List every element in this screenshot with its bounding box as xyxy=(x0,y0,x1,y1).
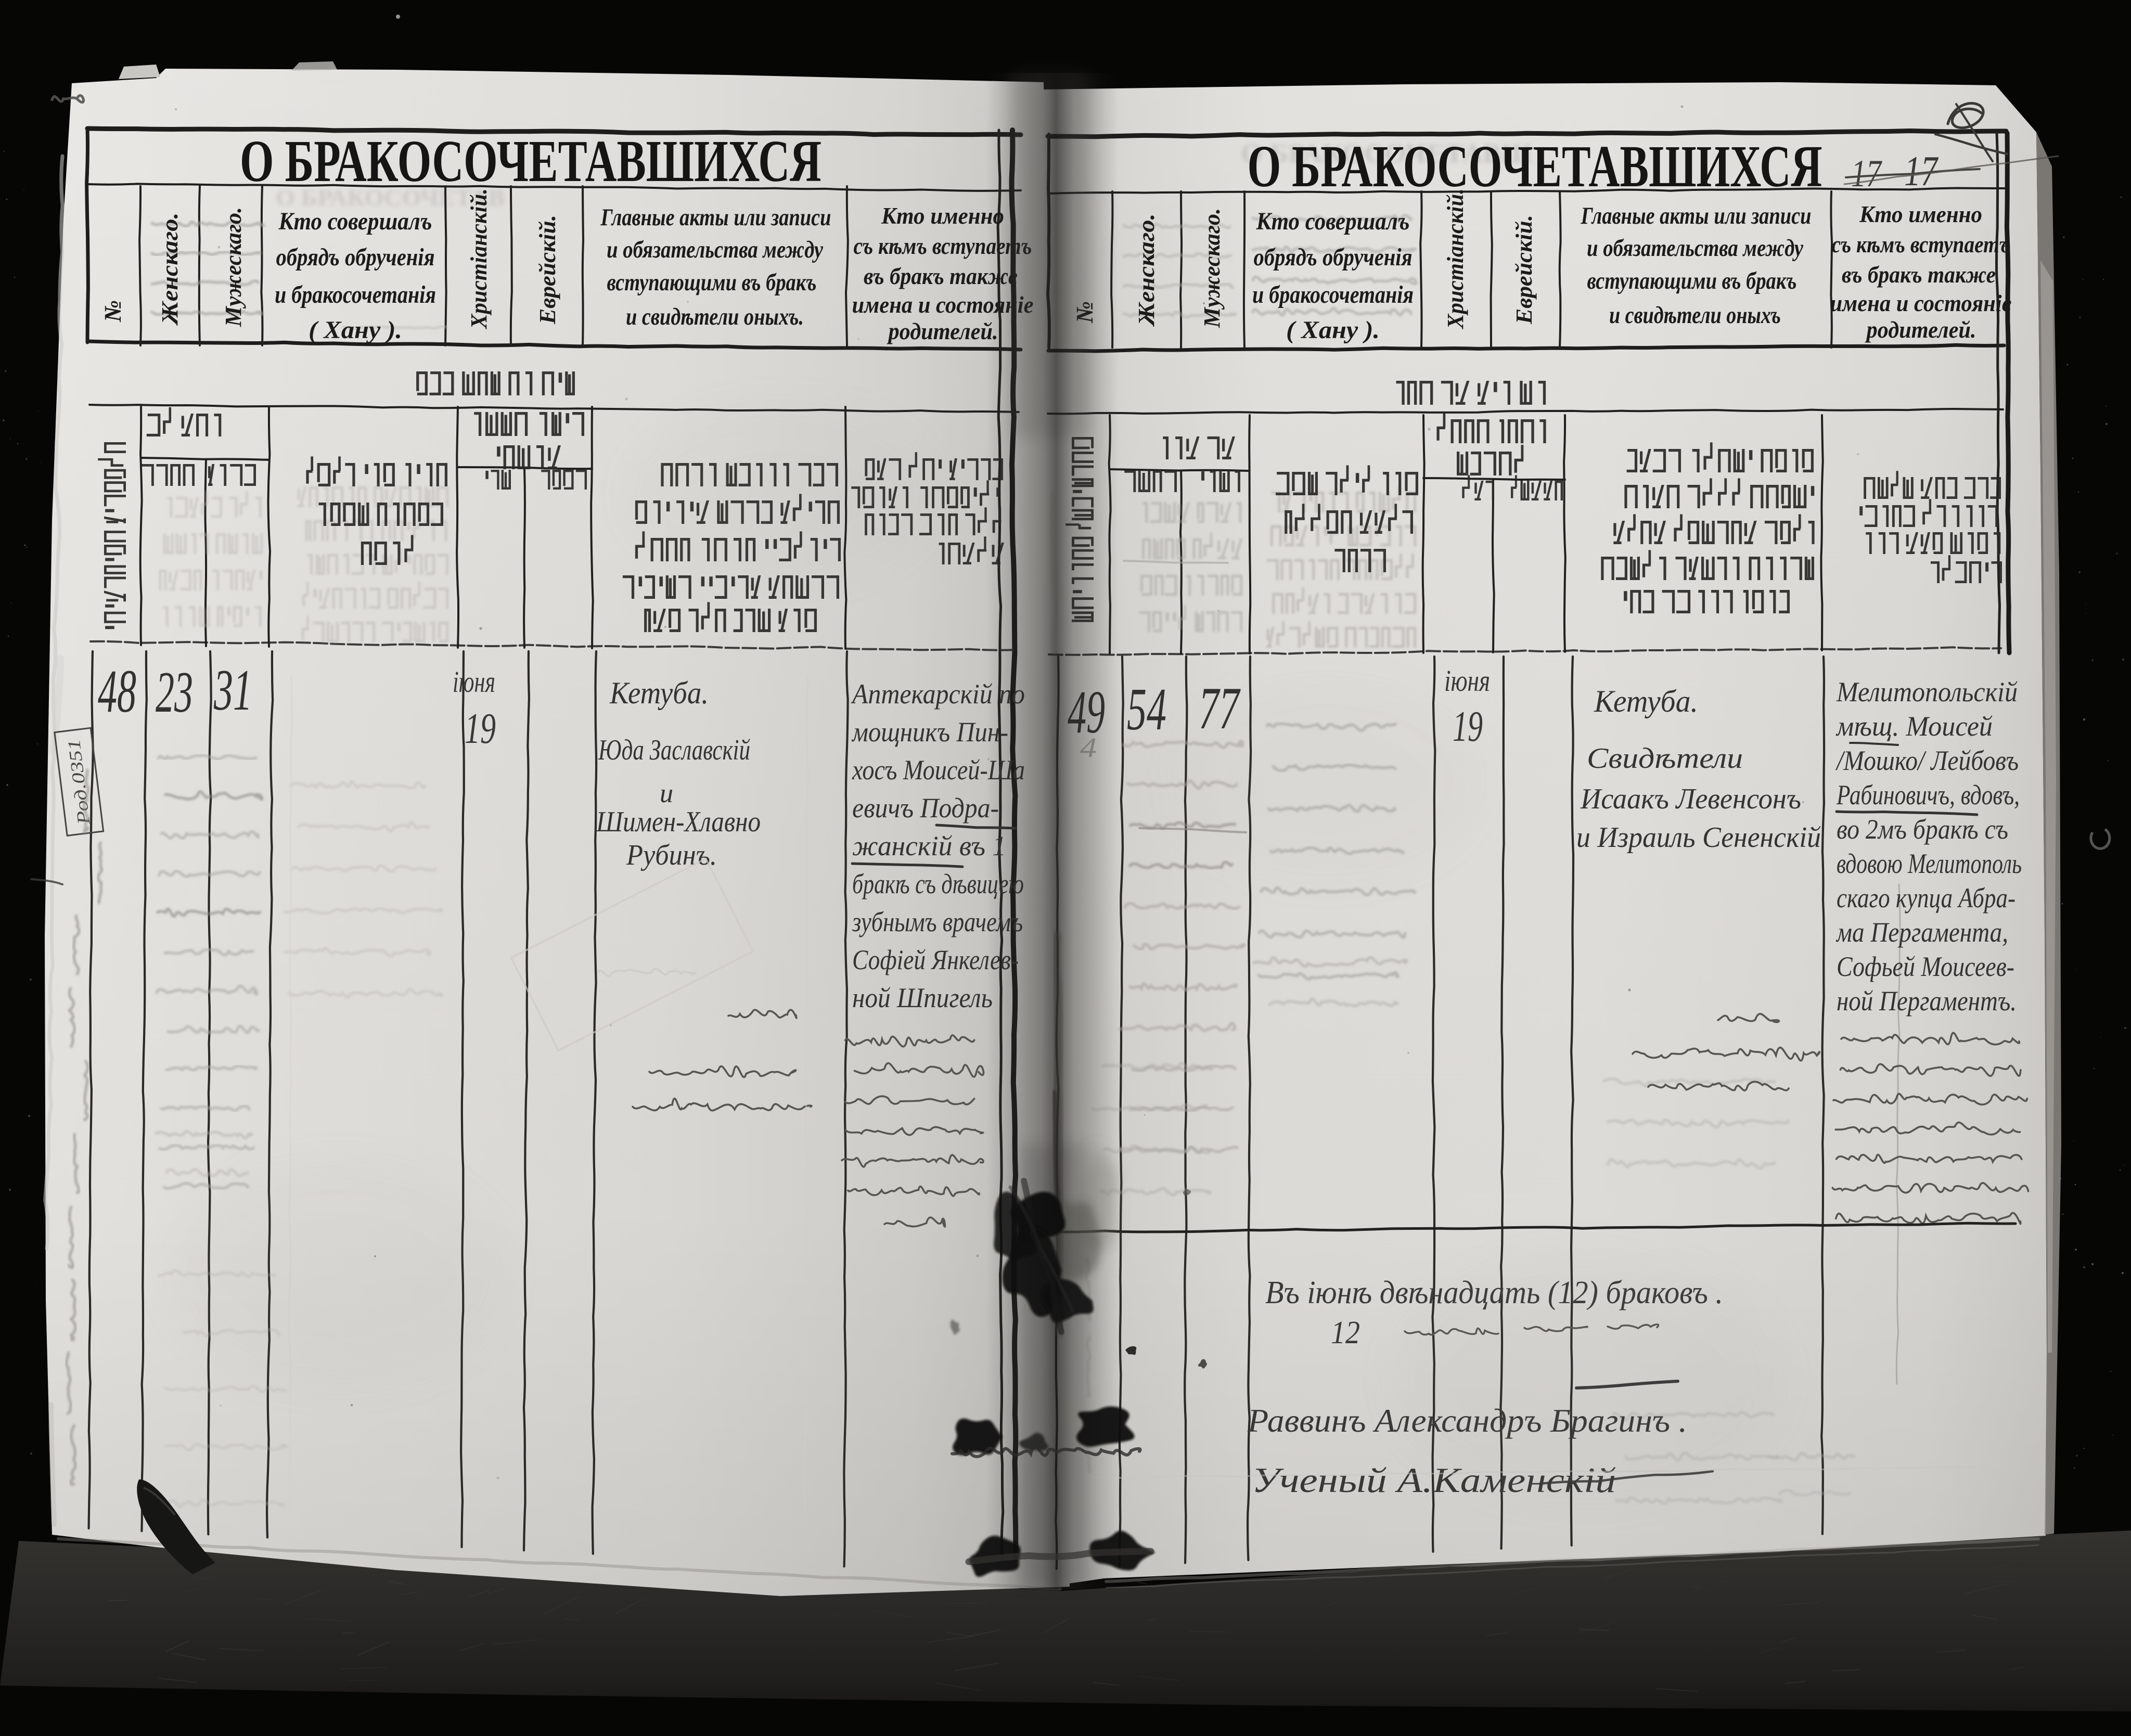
svg-text:ной Шпигель: ной Шпигель xyxy=(852,982,993,1013)
svg-text:и Израиль Сененскій: и Израиль Сененскій xyxy=(1576,821,1821,854)
svg-text:ной Пергаментъ.: ной Пергаментъ. xyxy=(1837,985,2017,1017)
svg-text:мѣщ. Моисей: мѣщ. Моисей xyxy=(1835,711,1993,742)
svg-text:и свидѣтели оныхъ: и свидѣтели оныхъ xyxy=(1609,302,1781,329)
svg-text:/Мошко/ Лейбовъ: /Мошко/ Лейбовъ xyxy=(1835,745,2019,776)
svg-text:( Хану ).: ( Хану ). xyxy=(309,316,402,344)
svg-text:Кетуба.: Кетуба. xyxy=(1594,684,1698,718)
svg-text:Мужескаго.: Мужескаго. xyxy=(221,207,246,327)
svg-text:скаго купца Абра-: скаго купца Абра- xyxy=(1837,882,2016,914)
svg-text:и бракосочетанія: и бракосочетанія xyxy=(275,281,436,308)
svg-text:12: 12 xyxy=(1331,1315,1360,1351)
svg-text:48: 48 xyxy=(98,657,136,725)
svg-text:Еврейскій.: Еврейскій. xyxy=(535,215,560,325)
svg-text:и бракосочетанія: и бракосочетанія xyxy=(1252,281,1414,308)
svg-text:23: 23 xyxy=(156,660,193,725)
svg-text:вступающими въ бракъ: вступающими въ бракъ xyxy=(1587,267,1797,294)
svg-text:Главные акты или записи: Главные акты или записи xyxy=(1581,202,1812,229)
svg-text:и свидѣтели оныхъ.: и свидѣтели оныхъ. xyxy=(626,303,804,330)
svg-text:и: и xyxy=(660,779,673,808)
svg-text:іюня: іюня xyxy=(453,665,495,699)
svg-text:54: 54 xyxy=(1127,676,1166,742)
svg-text:17: 17 xyxy=(1851,152,1882,195)
svg-text:Кто именно: Кто именно xyxy=(1859,201,1982,227)
svg-text:31: 31 xyxy=(213,658,252,723)
svg-text:и обязательства между: и обязательства между xyxy=(1587,235,1803,262)
svg-text:Еврейскій.: Еврейскій. xyxy=(1511,215,1537,325)
svg-text:№: № xyxy=(99,300,126,323)
svg-text:Женскаго.: Женскаго. xyxy=(1134,214,1159,327)
svg-text:О БРАКОСОЧЕТАВШИХСЯ: О БРАКОСОЧЕТАВШИХСЯ xyxy=(1248,133,1822,199)
svg-text:Рубинъ.: Рубинъ. xyxy=(626,839,717,871)
svg-text:Шимен-Хлавно: Шимен-Хлавно xyxy=(596,806,761,838)
svg-text:іюня: іюня xyxy=(1444,664,1490,698)
svg-text:19: 19 xyxy=(465,704,496,753)
svg-text:Софьей Моисеев-: Софьей Моисеев- xyxy=(1837,951,2014,982)
svg-text:Свидѣтели: Свидѣтели xyxy=(1587,742,1743,775)
svg-text:Христіанскій.: Христіанскій. xyxy=(466,188,492,330)
svg-text:Женскаго.: Женскаго. xyxy=(157,213,183,326)
svg-text:Рабиновичъ, вдовъ,: Рабиновичъ, вдовъ, xyxy=(1836,779,2020,811)
svg-text:( Хану ).: ( Хану ). xyxy=(1286,316,1380,344)
svg-text:родителей.: родителей. xyxy=(1865,317,1976,343)
svg-text:вдовою Мелитополь: вдовою Мелитополь xyxy=(1837,848,2022,879)
svg-text:Главные акты или записи: Главные акты или записи xyxy=(600,204,831,231)
svg-text:Христіанскій.: Христіанскій. xyxy=(1443,188,1468,330)
svg-text:Кетуба.: Кетуба. xyxy=(609,676,709,710)
svg-text:ма Пергамента,: ма Пергамента, xyxy=(1835,917,2008,948)
svg-text:обрядъ обрученія: обрядъ обрученія xyxy=(276,243,435,271)
svg-text:О БРАКОСОЧЕТАВШИХСЯ: О БРАКОСОЧЕТАВШИХСЯ xyxy=(240,128,821,194)
svg-text:въ бракъ также: въ бракъ также xyxy=(1842,262,1996,288)
svg-text:имена и состояніе: имена и состояніе xyxy=(1830,290,2012,316)
svg-text:обрядъ обрученія: обрядъ обрученія xyxy=(1254,243,1413,271)
svg-text:Кто совершалъ: Кто совершалъ xyxy=(278,208,432,235)
svg-text:Мелитопольскій: Мелитопольскій xyxy=(1836,676,2018,708)
svg-text:вступающими въ бракъ: вступающими въ бракъ xyxy=(607,269,817,296)
svg-text:съ кѣмъ вступаетъ: съ кѣмъ вступаетъ xyxy=(1832,232,2010,258)
svg-text:Кто совершалъ: Кто совершалъ xyxy=(1256,208,1410,235)
svg-text:Юда Заславскій: Юда Заславскій xyxy=(598,734,750,766)
svg-text:и обязательства между: и обязательства между xyxy=(607,236,823,263)
svg-text:во 2мъ бракѣ съ: во 2мъ бракѣ съ xyxy=(1837,814,2008,845)
svg-text:евичъ Подра-: евичъ Подра- xyxy=(852,792,999,824)
svg-text:Исаакъ Левенсонъ: Исаакъ Левенсонъ xyxy=(1580,783,1801,815)
svg-text:Мужескаго.: Мужескаго. xyxy=(1199,208,1225,328)
